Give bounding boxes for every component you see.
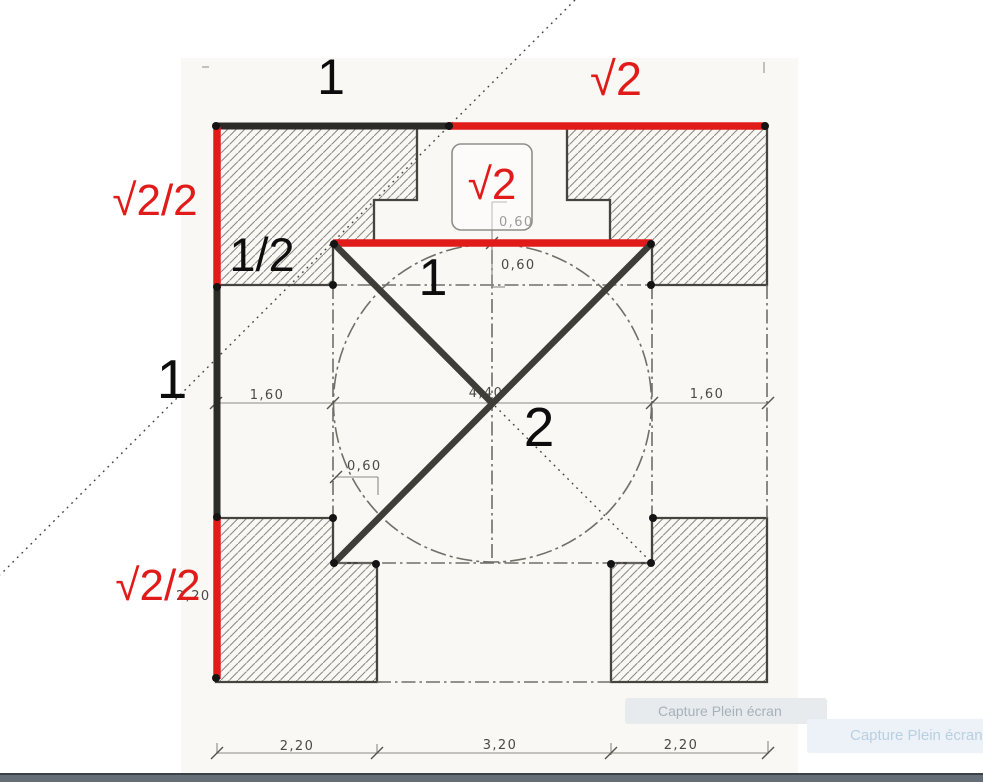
dim-value-5: 1,60 (690, 387, 725, 402)
capture-fullscreen-button-2-label: Capture Plein écran (850, 727, 983, 744)
dim-value-8: 3,20 (483, 738, 518, 753)
corner-dot-11 (649, 514, 657, 522)
dim-value-9: 2,20 (664, 738, 699, 753)
corner-dot-5 (212, 674, 220, 682)
corner-dot-6 (330, 240, 338, 248)
corner-dot-10 (329, 514, 337, 522)
label-sqrt2-boxed: √2 (468, 160, 517, 209)
capture-fullscreen-button-2[interactable]: Capture Plein écran (807, 719, 983, 753)
screenshot-root: 2,200,600,601,604,401,600,602,203,202,20… (0, 0, 983, 782)
dim-value-7: 2,20 (280, 739, 315, 754)
capture-fullscreen-button-1[interactable]: Capture Plein écran (625, 698, 827, 724)
corner-dot-12 (330, 559, 338, 567)
corner-dot-8 (329, 281, 337, 289)
corner-dot-14 (372, 560, 380, 568)
corner-dot-3 (213, 283, 221, 291)
dim-value-2: 0,60 (501, 258, 536, 273)
corner-dot-4 (213, 513, 221, 521)
corner-dot-15 (607, 560, 615, 568)
capture-fullscreen-button-1-label: Capture Plein écran (658, 703, 782, 719)
corner-dot-7 (647, 240, 655, 248)
label-sqrt2-half-lower: √2/2 (115, 561, 200, 610)
floor-plan-drawing: 2,200,600,601,604,401,600,602,203,202,20… (0, 0, 983, 782)
corner-dot-9 (647, 281, 655, 289)
label-one-half: 1/2 (229, 228, 294, 281)
label-sqrt2-top: √2 (590, 52, 642, 105)
screen-bottom-edge-bar (0, 773, 983, 782)
label-one-left: 1 (157, 348, 188, 410)
corner-dot-0 (212, 122, 220, 130)
corner-dot-13 (647, 559, 655, 567)
label-two-center: 2 (524, 396, 555, 458)
label-one-inner: 1 (419, 249, 448, 307)
dim-value-3: 1,60 (250, 388, 285, 403)
corner-dot-2 (761, 122, 769, 130)
label-one-top: 1 (317, 49, 345, 105)
corner-dot-1 (445, 122, 453, 130)
label-sqrt2-half-upper: √2/2 (112, 176, 197, 225)
dim-value-6: 0,60 (347, 459, 382, 474)
